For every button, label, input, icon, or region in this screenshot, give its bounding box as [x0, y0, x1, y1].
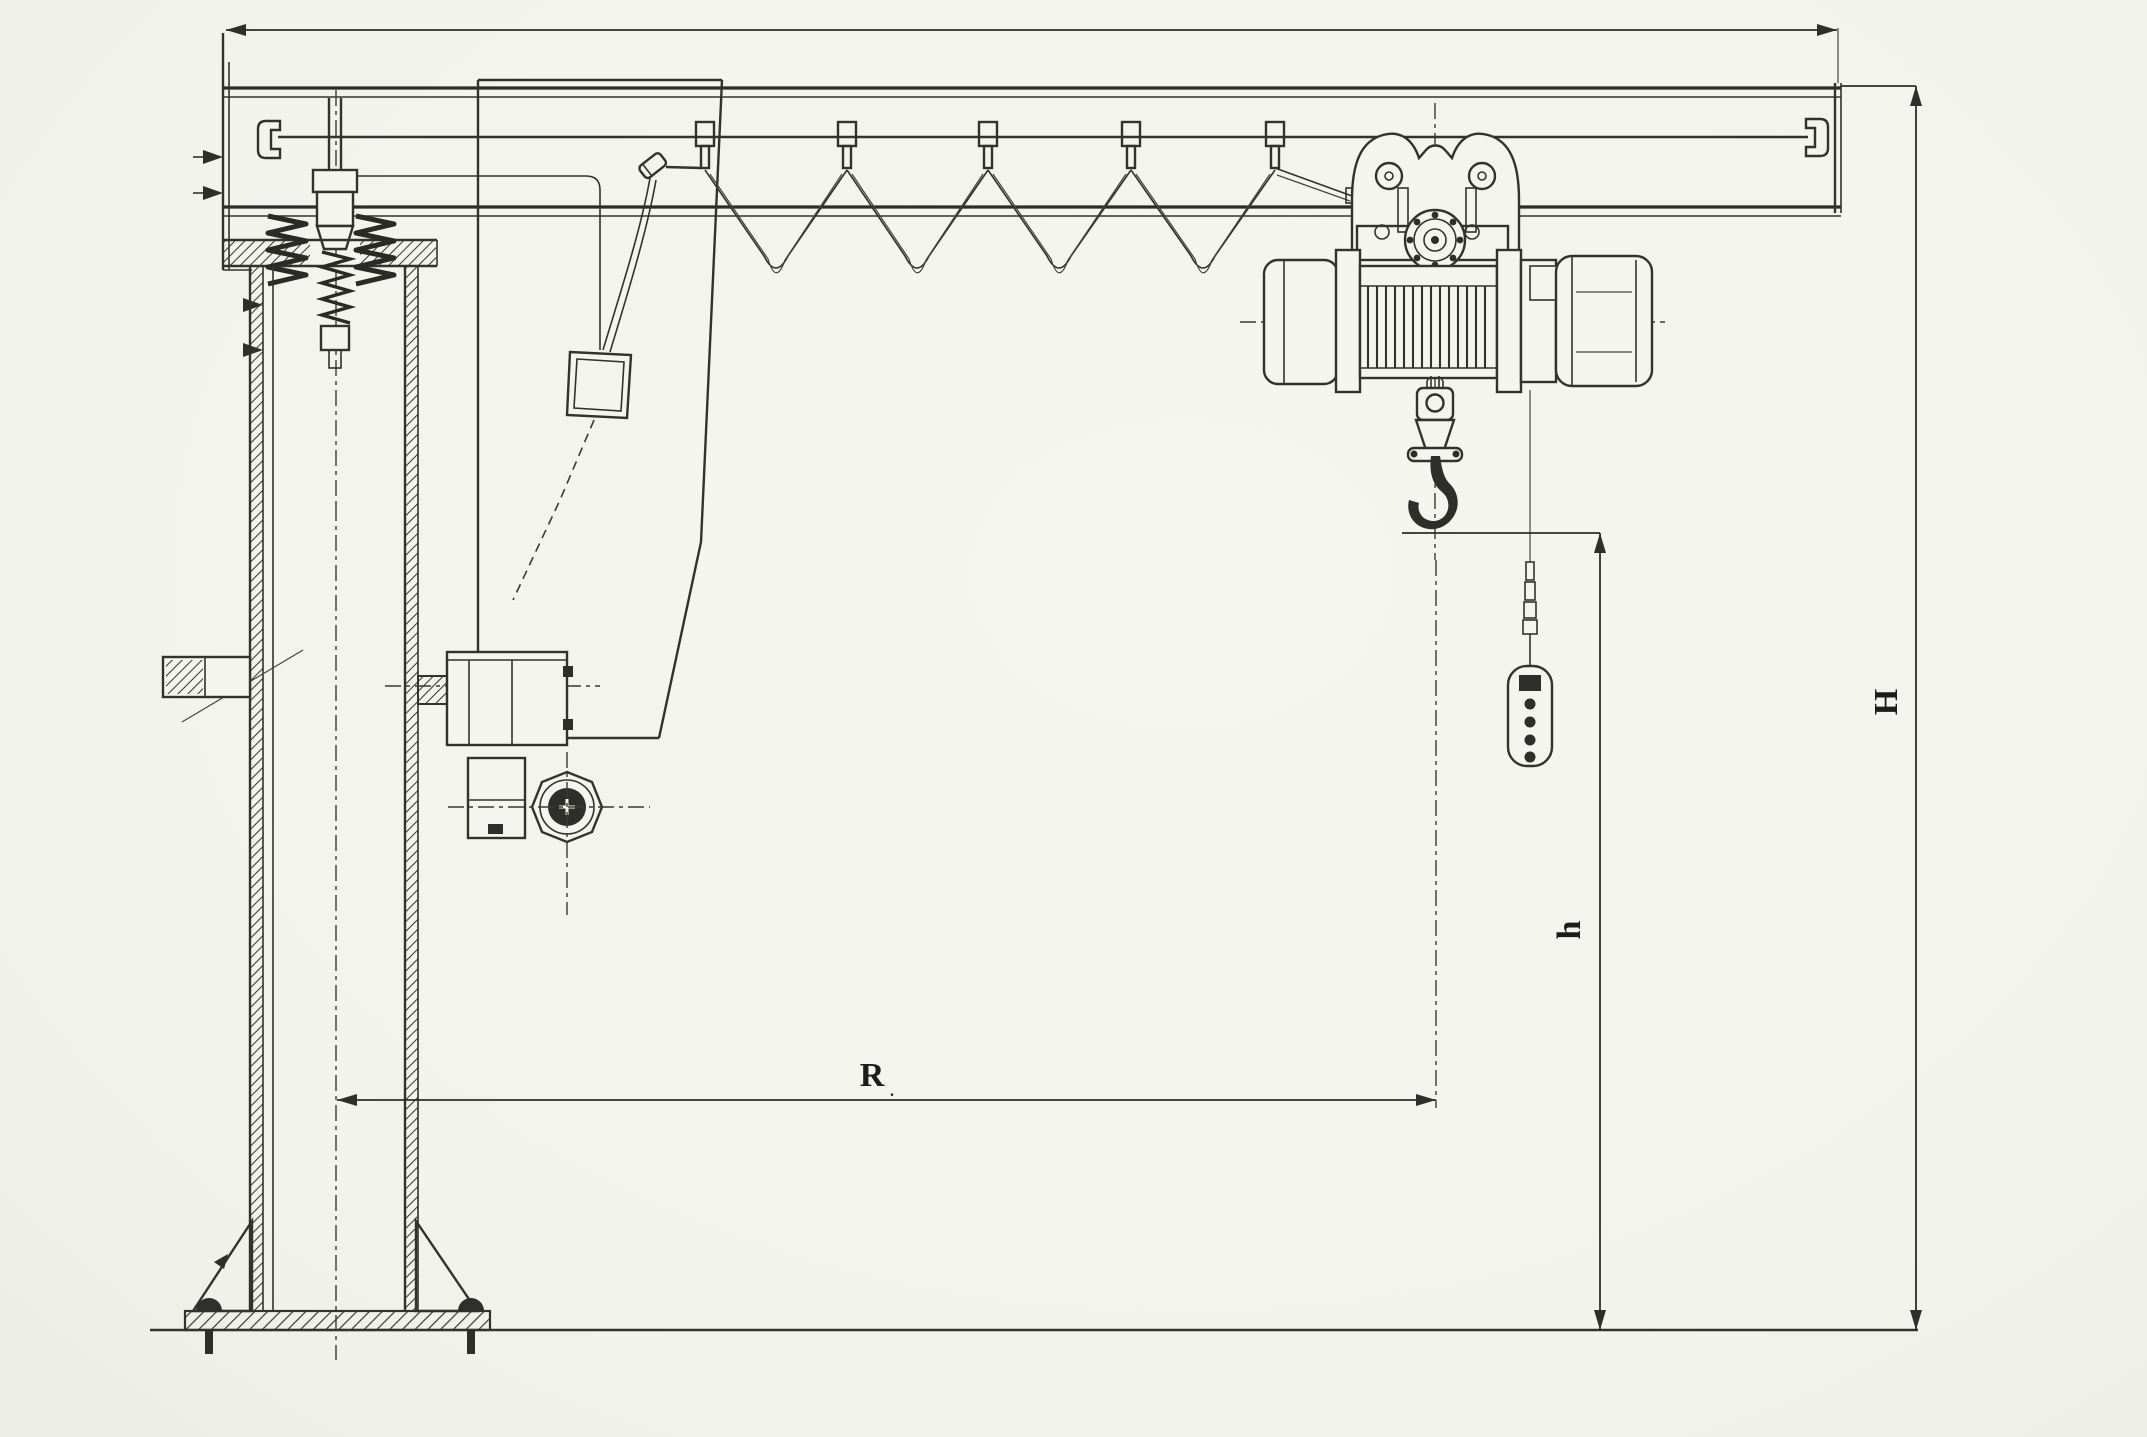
- hoist-rope-drum: [1360, 266, 1497, 378]
- cable-hanger: [838, 122, 856, 168]
- cable-hanger: [696, 122, 714, 168]
- pendant-button: [1525, 717, 1536, 728]
- dimension-span: [226, 24, 1838, 83]
- column-left-wall: [250, 266, 263, 1312]
- dimension-hook-height: h: [1402, 533, 1606, 1330]
- column-right-wall: [405, 266, 418, 1312]
- cable-hanger: [1266, 122, 1284, 168]
- pendant-button: [1525, 699, 1536, 710]
- central-spring: [322, 252, 350, 323]
- mounting-stub-left: [163, 657, 250, 697]
- label-working-radius: R: [860, 1057, 885, 1094]
- shackle: [1417, 388, 1453, 420]
- boom-end-stop-right: [1806, 119, 1828, 156]
- cable-loops: [705, 168, 1358, 273]
- pendant-button: [1525, 735, 1536, 746]
- cable-hanger: [979, 122, 997, 168]
- trolley-wheel: [1376, 163, 1402, 189]
- kingpin-lower-nut: [321, 326, 349, 350]
- crane-base: [150, 1221, 1918, 1354]
- electric-hoist: [1240, 250, 1665, 392]
- kingpin-head: [317, 192, 353, 226]
- kingpin-nut: [313, 170, 357, 192]
- rope-guide-wheel: [1405, 210, 1465, 270]
- drop-cable: [603, 178, 650, 350]
- drawing-sheet: H h R .: [0, 0, 2147, 1437]
- hoist-left-cap: [1264, 260, 1338, 384]
- pendant-button: [1525, 752, 1536, 763]
- mounting-stub-right: [418, 676, 447, 704]
- slewing-gearbox: [447, 652, 573, 745]
- support-column: [163, 266, 418, 1360]
- slewing-drive: [385, 652, 650, 915]
- label-radius-subscript: .: [890, 1083, 894, 1100]
- gearbox-lower-stage: [468, 758, 525, 838]
- label-total-height: H: [1868, 689, 1905, 715]
- drum-flange-right: [1497, 250, 1521, 392]
- boom-end-stop-left: [258, 121, 280, 158]
- pendant-control: [1508, 390, 1552, 766]
- cable-end-connector: [638, 152, 668, 180]
- dimension-total-height: H: [1841, 86, 1922, 1330]
- cable-hanger: [1122, 122, 1140, 168]
- drum-flange-left: [1336, 250, 1360, 392]
- gusset-left: [193, 1221, 252, 1311]
- festoon-cable-system: [357, 122, 1358, 600]
- cable-junction-box: [513, 352, 631, 600]
- base-plate: [185, 1311, 490, 1330]
- trolley-wheel: [1469, 163, 1495, 189]
- gusset-right: [416, 1221, 477, 1311]
- lifting-hook: [1408, 456, 1457, 529]
- pendant-clip: [1519, 675, 1541, 691]
- hoist-motor: [1556, 256, 1652, 386]
- label-hook-height: h: [1551, 920, 1588, 939]
